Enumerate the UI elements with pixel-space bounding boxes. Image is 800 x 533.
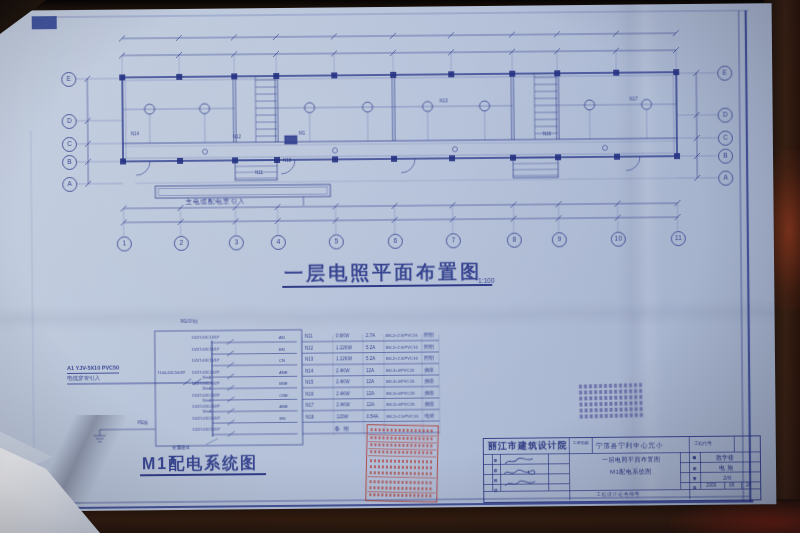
phase-label: BNE (279, 382, 288, 386)
breaker-label: DZ47-63C16/1P (193, 429, 220, 433)
axis-bubble: 11 (671, 231, 686, 246)
circuit-tag: M1 (299, 132, 305, 137)
circuit-wire: BV-3×4/PVC20 (386, 380, 414, 384)
circuit-power: 2.4KW (336, 369, 350, 374)
circuit-load: 备用 (335, 426, 352, 432)
circuit-tag: N16 (543, 132, 551, 137)
axis-bubble: E (61, 72, 76, 87)
circuit-power: 0.6KW (336, 334, 350, 339)
circuit-load: 照明 (424, 332, 434, 337)
circuit-load: 照明 (424, 355, 434, 360)
circuit-wire: BV-2×2.5/PVC16 (387, 415, 419, 420)
circuit-wire: BV-2×2.5/PVC16 (386, 346, 418, 351)
circuit-power: 1.12KW (336, 357, 352, 362)
project-code-label: 工程代号 (694, 442, 712, 447)
axis-bubble: B (718, 149, 733, 164)
rcd-label: 30mA (202, 388, 211, 392)
drawing-title-1: 一层电照平面布置图 (602, 456, 661, 463)
circuit-tag: N12 (233, 135, 241, 140)
circuit-current: 5.2A (366, 346, 375, 351)
circuit-id: N16 (305, 393, 313, 398)
m1-box-label: M1/定制 (181, 320, 198, 325)
item-value: 教学楼 (716, 455, 734, 461)
circuit-load: 插座 (424, 401, 434, 406)
phase-label: CNE (279, 394, 288, 398)
axis-bubble: C (718, 131, 733, 146)
no-value: 2/6 (723, 475, 731, 481)
institute-name: 丽江市建筑设计院 (488, 441, 568, 451)
project-name-label: 工程名称 (573, 440, 591, 452)
drawing-title-2: M1配电系统图 (610, 468, 652, 474)
feeder-spec: A1 YJV-5X10 PVC50 (67, 366, 119, 374)
circuit-wire: BV-2×2.5/PVC16 (386, 334, 418, 339)
axis-bubble: 4 (271, 235, 286, 250)
axis-bubble: A (718, 171, 733, 186)
phase-label: AN (279, 336, 285, 340)
circuit-id: N12 (305, 347, 313, 352)
phase-label: ANE (279, 371, 288, 375)
axis-bubble: A (62, 177, 77, 192)
breaker-label: DZ47-63C16/1P (193, 418, 220, 422)
handwritten-signatures (501, 454, 551, 490)
axis-bubble: C (62, 137, 77, 152)
phase-label: ANE (279, 405, 288, 409)
axis-bubble: 1 (117, 236, 132, 251)
cert-number-label: 工程设计证书编号 (596, 493, 640, 498)
circuit-load: 电铃 (425, 413, 435, 418)
circuit-load: 插座 (424, 378, 434, 383)
axis-bubble: D (62, 114, 77, 129)
circuit-power: 2.4KW (336, 380, 350, 385)
breaker-label: DZ47-63C16/1P (192, 337, 219, 341)
system-title: M1配电系统图 (140, 455, 266, 476)
circuit-id: N13 (305, 358, 313, 363)
breaker-label: DZ47-63C16/1P (192, 360, 219, 364)
circuit-wire: BV-3×4/PVC20 (386, 369, 414, 373)
circuit-tag: N11 (255, 171, 263, 176)
axis-bubble: E (717, 66, 732, 81)
rcd-label: 30mA (202, 411, 211, 415)
photo-of-blueprint: 1 2 3 4 5 6 7 8 9 10 11 E D C B A E D C … (0, 0, 800, 533)
circuit-id: N18 (306, 416, 314, 421)
circuit-tag: N13 (439, 99, 447, 104)
breaker-label: DZ47-63C16/1P (192, 349, 219, 353)
circuit-id: N14 (305, 370, 313, 375)
circuit-current: 5.2A (366, 357, 375, 362)
circuit-current: 12A (366, 392, 374, 397)
axis-bubble: 3 (229, 235, 244, 250)
circuit-tag: N14 (131, 132, 139, 137)
circuit-id: N17 (305, 404, 313, 409)
axis-bubble: 9 (552, 232, 567, 247)
circuit-power: 1.12KW (336, 346, 352, 351)
plan-scale: 1:100 (478, 278, 494, 285)
date-month: 08 (729, 483, 734, 488)
circuit-current: 12A (366, 380, 374, 385)
plan-title: 一层电照平面布置图 (282, 262, 492, 288)
phase-label: CN (279, 359, 285, 363)
axis-bubble: 5 (329, 234, 344, 249)
date-year: 2009 (706, 483, 716, 488)
title-block: 丽江市建筑设计院 工程名称 宁蒗县宁利中心完小 工程代号 审定 审核 校对 设计… (483, 435, 762, 503)
feeder-note: 电缆穿管引入 (67, 376, 100, 382)
axis-bubble: 2 (174, 236, 189, 251)
axis-bubble: D (718, 108, 733, 123)
axis-bubble: 6 (388, 234, 403, 249)
date-day: 28 (746, 483, 751, 488)
main-breaker-label: T100-63C50/3P (157, 371, 185, 375)
plotting-seal (579, 382, 643, 421)
circuit-power: 120W (337, 415, 349, 420)
incoming-note: 主电缆配电室引入 (185, 198, 245, 205)
rcd-label: 30mA (202, 400, 211, 404)
rcd-label: 30mA (202, 377, 211, 381)
project-name: 宁蒗县宁利中心完小 (596, 442, 664, 449)
circuit-load: 照明 (424, 344, 434, 349)
circuit-tag: N18 (283, 159, 291, 164)
circuit-current: 12A (366, 369, 374, 374)
circuit-power: 2.4KW (336, 392, 350, 397)
circuit-current: 12A (366, 403, 374, 408)
circuit-tag: N17 (629, 98, 637, 103)
circuit-wire: BV-3×4/PVC20 (386, 403, 414, 407)
circuit-current: 2.7A (366, 334, 375, 339)
phase-label: BN (280, 417, 286, 421)
phase-label: BN (279, 348, 285, 352)
axis-bubble: 8 (507, 233, 522, 248)
circuit-id: N11 (305, 335, 313, 340)
axis-bubble: 10 (611, 232, 626, 247)
axis-bubble: B (62, 155, 77, 170)
circuit-current: 0.54A (367, 415, 379, 420)
circuit-wire: BV-2×2.5/PVC16 (386, 357, 418, 362)
circuit-power: 2.4KW (336, 403, 350, 408)
type-value: 电施 (719, 465, 735, 471)
enclosure-label: 金属箱体 (172, 446, 190, 451)
circuit-id: N15 (305, 381, 313, 386)
approval-stamp (365, 424, 438, 502)
circuit-wire: BV-3×4/PVC20 (386, 392, 414, 396)
circuit-load: 插座 (424, 390, 434, 395)
axis-bubble: 7 (446, 233, 461, 248)
circuit-load: 插座 (424, 367, 434, 372)
